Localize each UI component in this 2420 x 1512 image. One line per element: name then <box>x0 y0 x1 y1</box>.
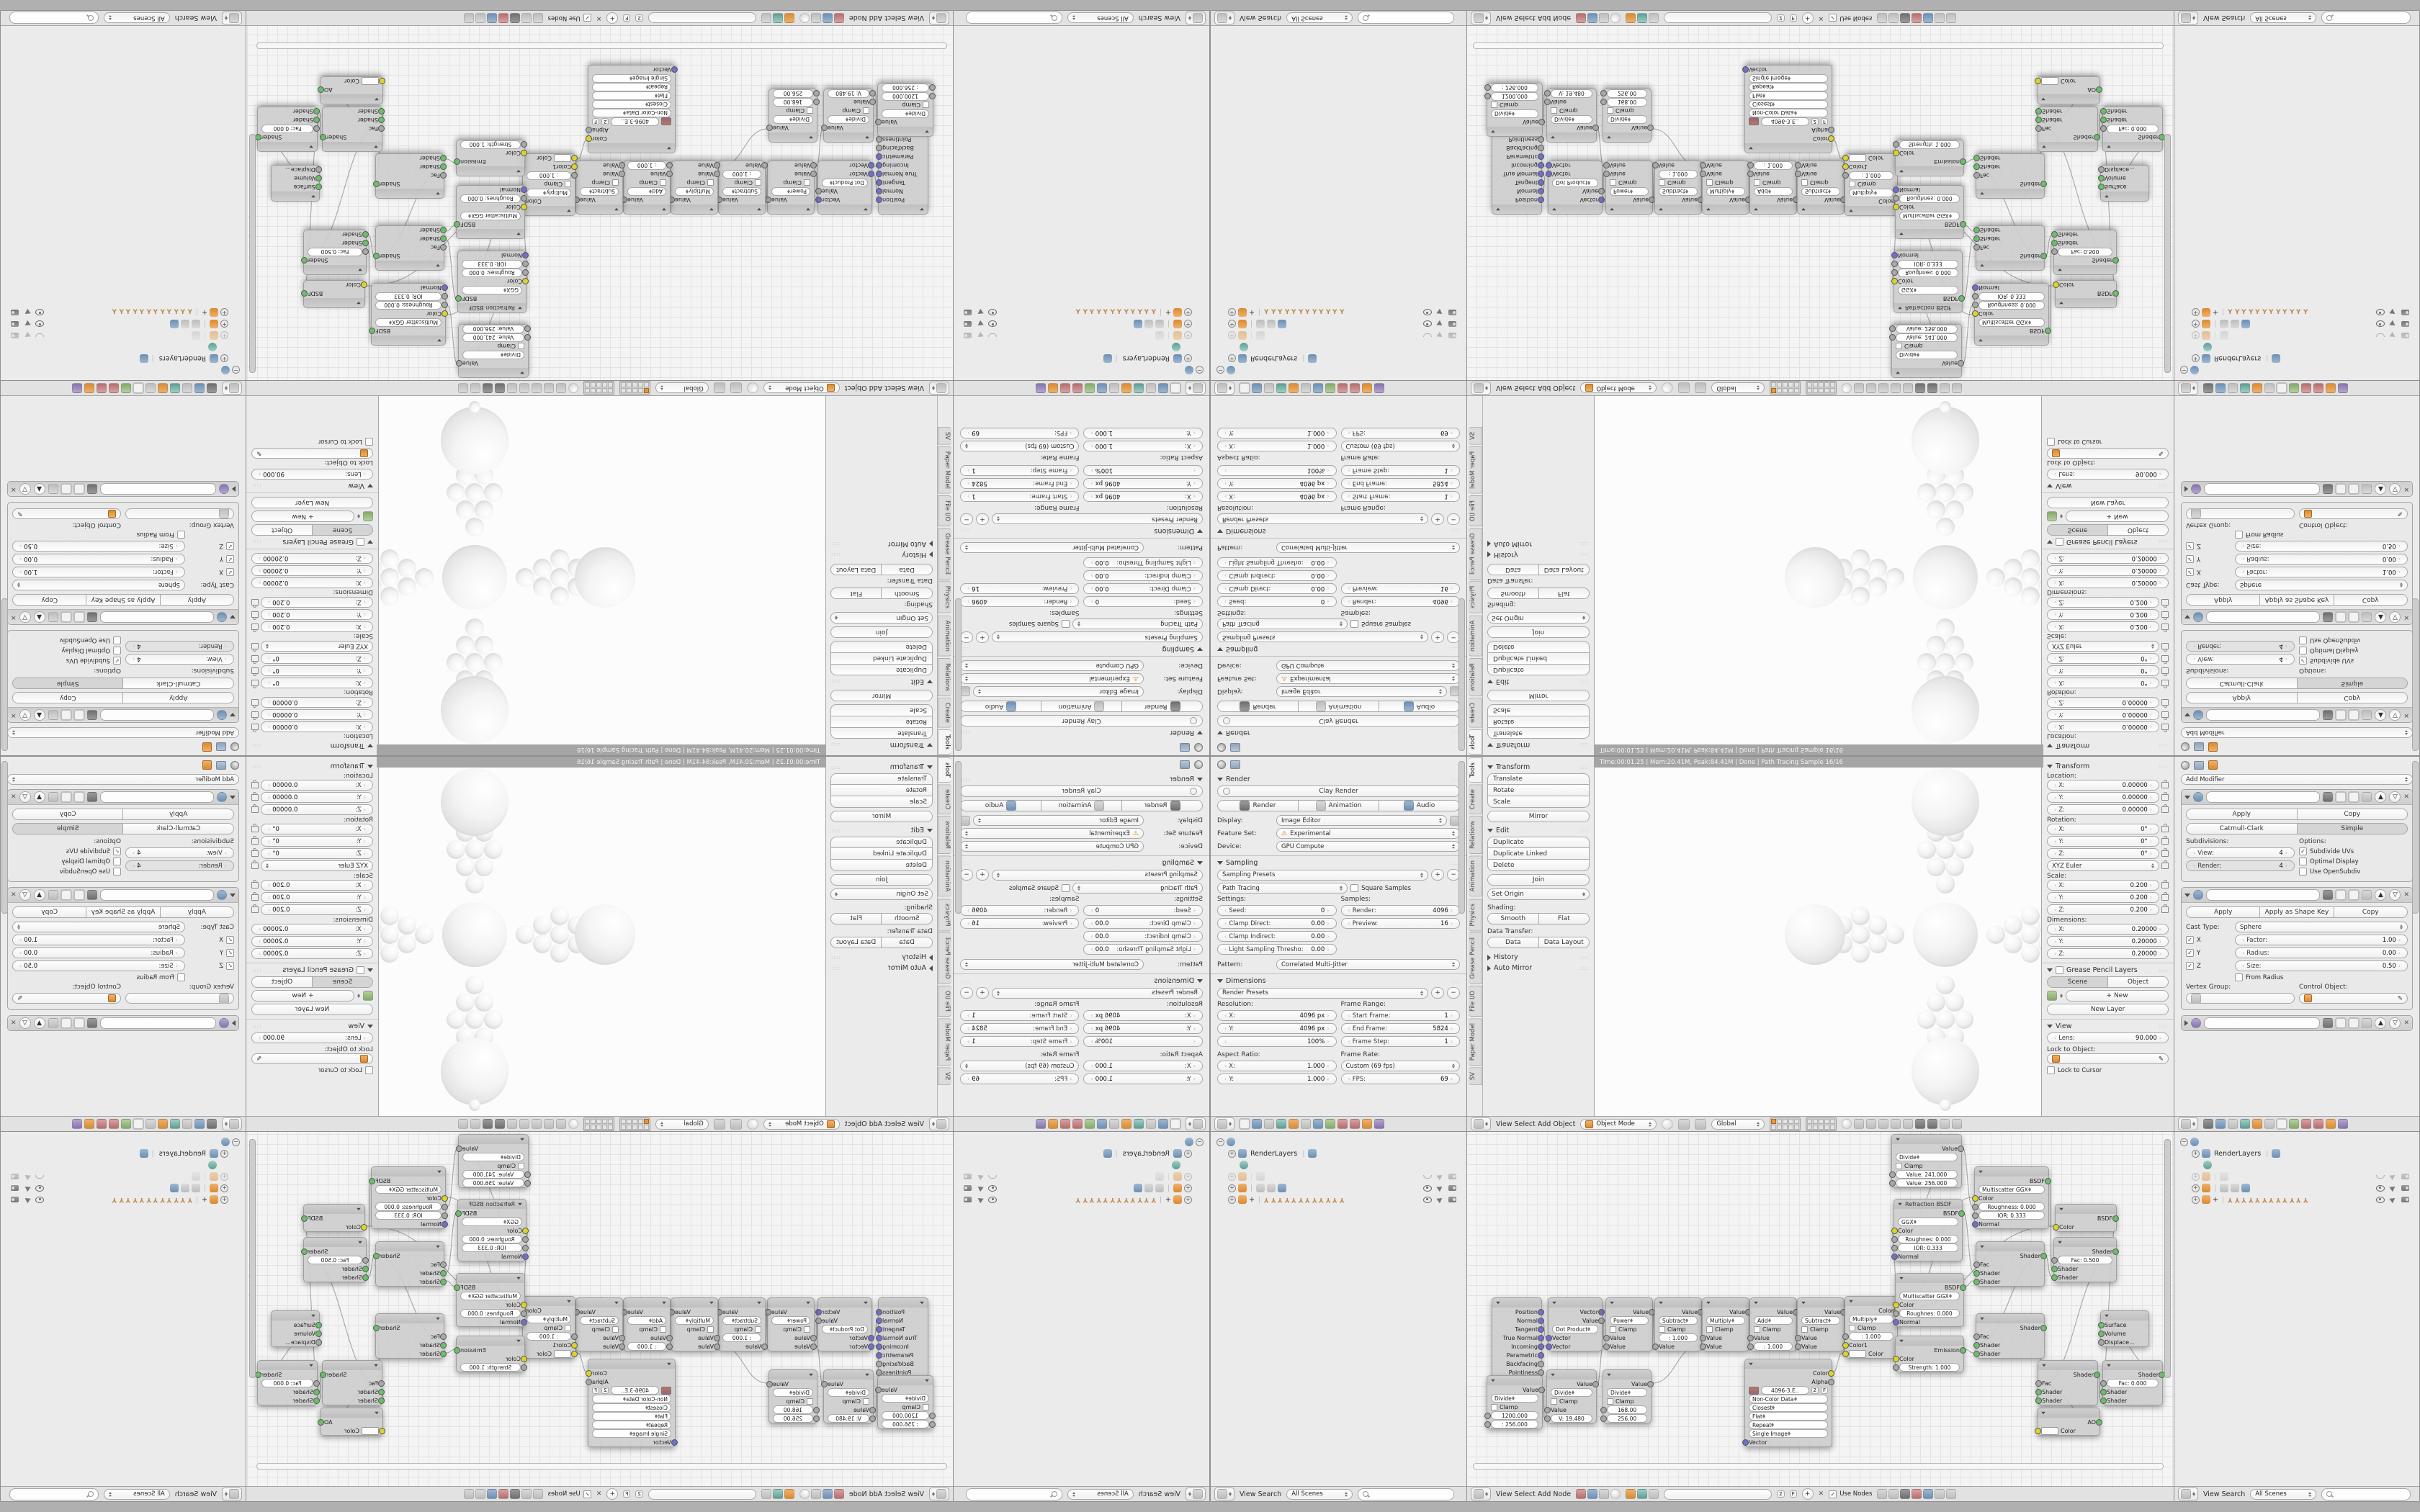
aspect-x-field[interactable]: X:1.000 <box>1217 1061 1337 1071</box>
shelf-tab-create[interactable]: Create <box>1469 698 1482 728</box>
layer-cell[interactable] <box>644 383 649 388</box>
socket-in[interactable] <box>442 1221 448 1228</box>
lens-field[interactable]: Lens:90.000 <box>2047 469 2169 480</box>
shelf-tab-relations[interactable]: Relations <box>938 816 951 854</box>
data-button[interactable]: Data <box>882 564 933 575</box>
node-canvas[interactable]: PositionNormalTangentTrue NormalIncoming… <box>1467 25 2174 380</box>
lock-icon[interactable] <box>2161 806 2169 813</box>
expander-icon[interactable]: + <box>2192 1196 2200 1204</box>
socket-in[interactable] <box>378 117 385 123</box>
editmode-toggle-icon[interactable] <box>61 1018 71 1028</box>
subdiv-render-field[interactable]: Render:4 <box>125 860 234 871</box>
socket-out[interactable] <box>815 1318 822 1324</box>
collapse-icon[interactable] <box>230 714 236 717</box>
screencast-icon[interactable] <box>458 383 468 393</box>
shade-flat-button[interactable]: Flat <box>830 913 882 924</box>
socket-in[interactable] <box>571 163 578 170</box>
layer-cell[interactable] <box>1783 1119 1788 1124</box>
location-z-field[interactable]: Z:0.00000 <box>261 804 373 815</box>
lock-icon[interactable] <box>2161 624 2169 630</box>
socket-in[interactable] <box>1795 1335 1801 1341</box>
location-x-field[interactable]: X:0.00000 <box>261 780 373 791</box>
modifier-name-field[interactable] <box>100 483 216 495</box>
image-name-field[interactable]: 4096-3.E.. <box>1761 117 1809 126</box>
constraints-tab-icon[interactable] <box>1109 1119 1119 1129</box>
node-select[interactable]: Multiscatter GGX <box>375 318 442 327</box>
fake-user-button[interactable]: F <box>623 1490 630 1498</box>
node-select[interactable]: Divide <box>1896 1153 1958 1161</box>
node-mix-1[interactable]: ShaderFacShaderShader <box>375 1241 444 1287</box>
shade-smooth-button[interactable]: Smooth <box>882 913 933 924</box>
expander-icon[interactable]: − <box>1196 366 1204 374</box>
node-menu-node[interactable]: Node <box>849 1490 867 1498</box>
socket-in[interactable] <box>2051 1274 2058 1281</box>
socket-out[interactable] <box>320 1372 326 1378</box>
eye-toggle-icon[interactable] <box>2336 612 2346 622</box>
socket-out[interactable] <box>766 125 773 131</box>
node-select[interactable]: Add <box>1754 187 1793 196</box>
socket-in[interactable] <box>1600 1416 1607 1422</box>
socket-out[interactable] <box>456 360 462 366</box>
move-down-button[interactable]: ▽ <box>19 709 31 721</box>
socket-out[interactable] <box>1647 125 1654 131</box>
clamp-indirect-field[interactable]: Clamp Indirect:0.00 <box>1084 931 1204 942</box>
editor-type-outliner[interactable] <box>2178 12 2198 24</box>
node-select[interactable]: Divide <box>1607 1388 1647 1397</box>
scrollbar[interactable] <box>1 598 8 751</box>
selectable-icon[interactable] <box>1436 1184 1443 1192</box>
node-select[interactable]: Divide <box>773 115 813 124</box>
insert-keyframe-icon[interactable] <box>487 1489 497 1499</box>
parent-node-icon[interactable] <box>521 13 532 23</box>
layer-cell[interactable] <box>608 383 613 388</box>
outliner-menu-search[interactable]: Search <box>175 1490 199 1498</box>
unlink-material-icon[interactable]: ✕ <box>1819 1490 1824 1498</box>
node-ao[interactable]: AOColor <box>2037 76 2100 104</box>
socket-in[interactable] <box>2035 1398 2042 1404</box>
object-tab-icon[interactable] <box>1289 1119 1299 1129</box>
node-menu-view[interactable]: View <box>907 1490 924 1498</box>
viewport-menu-object[interactable]: Object <box>1553 384 1575 392</box>
expand-plus[interactable]: + <box>2213 309 2218 317</box>
socket-in[interactable] <box>666 162 673 168</box>
rotation-mode-select[interactable]: XYZ Euler <box>2047 860 2159 871</box>
node-divide-b[interactable]: ValueDivideClampValueV: 19.480 <box>1546 1369 1597 1423</box>
socket-in[interactable] <box>869 99 876 105</box>
move-up-button[interactable]: ▲ <box>2375 889 2386 901</box>
modifiers-tab-icon[interactable] <box>1313 383 1323 393</box>
node-select[interactable]: Flat <box>1749 1412 1828 1421</box>
move-down-button[interactable]: ▽ <box>19 1017 31 1029</box>
expander-icon[interactable]: + <box>1184 1173 1192 1181</box>
material-tab-icon[interactable] <box>109 1119 119 1129</box>
opengl-anim-icon[interactable] <box>483 383 493 393</box>
factor-field[interactable]: Factor:1.00 <box>12 935 185 945</box>
lock-icon[interactable] <box>251 838 259 845</box>
render-layers-tab-icon[interactable] <box>1252 1119 1262 1129</box>
node-ao[interactable]: AOColor <box>320 76 383 104</box>
add-render-preset-button[interactable]: + <box>976 513 989 525</box>
socket-in[interactable] <box>1747 1335 1754 1341</box>
node-divide-d[interactable]: ValueDivideClampValue: 241.000Value: 256… <box>1891 324 1962 378</box>
node-number-field[interactable]: Fac: 0.000 <box>2107 125 2159 133</box>
layer-cell[interactable] <box>621 1125 626 1130</box>
dimensions-z-field[interactable]: Z:0.20000 <box>251 553 373 564</box>
data-button[interactable]: Data <box>882 937 933 948</box>
selectable-icon[interactable] <box>2389 320 2396 328</box>
socket-out[interactable] <box>821 1381 828 1387</box>
device-select[interactable]: GPU Compute <box>1276 841 1460 852</box>
feature-set-select[interactable]: ⚠Experimental <box>960 673 1144 684</box>
eye-icon[interactable] <box>2376 321 2385 328</box>
outliner-row[interactable]: +RenderLayers| <box>956 353 1204 364</box>
particles-tab-icon[interactable] <box>1362 1119 1372 1129</box>
renderable-icon[interactable] <box>11 333 19 338</box>
socket-in[interactable] <box>440 1342 447 1349</box>
node-number-field[interactable]: 1200.000 <box>1491 92 1538 101</box>
node-select[interactable]: Repeat <box>1749 83 1828 91</box>
lock-to-cursor-checkbox[interactable]: Lock to Cursor <box>2047 1066 2169 1074</box>
world-tab-icon[interactable] <box>1276 1119 1286 1129</box>
socket-in[interactable] <box>2100 108 2107 114</box>
selectable-icon[interactable] <box>2389 1196 2396 1204</box>
new-material-button[interactable]: + <box>1802 12 1814 24</box>
node-select[interactable]: Closest <box>592 1403 671 1412</box>
socket-in[interactable] <box>1842 155 1849 161</box>
socket-out[interactable] <box>2096 86 2102 93</box>
expander-icon[interactable]: + <box>1228 1184 1236 1192</box>
clay-render-radio[interactable] <box>1223 788 1230 795</box>
node-vscrollbar[interactable] <box>249 1139 256 1378</box>
modifiers-tab-icon[interactable] <box>2277 1119 2287 1129</box>
node-checkbox[interactable] <box>1706 180 1713 186</box>
socket-in[interactable] <box>1747 162 1754 168</box>
eye-icon[interactable] <box>988 1197 997 1203</box>
layers-grid-2[interactable] <box>583 1117 614 1131</box>
mirror-button[interactable]: Mirror <box>1487 690 1590 701</box>
socket-in[interactable] <box>524 1171 531 1178</box>
constraints-tab-icon[interactable] <box>1109 383 1119 393</box>
layer-cell[interactable] <box>1824 383 1829 388</box>
outliner-row[interactable]: +| <box>2180 318 2416 330</box>
node-menu-add[interactable]: Add <box>869 1490 882 1498</box>
node-number-field[interactable]: Strength: 1.000 <box>460 1363 521 1372</box>
eye-icon[interactable] <box>1423 310 1432 316</box>
socket-in[interactable] <box>1891 252 1898 258</box>
cage-toggle-icon[interactable] <box>48 1018 58 1028</box>
layer-cell[interactable] <box>1771 389 1776 394</box>
modifier-name-field[interactable] <box>2206 889 2320 901</box>
move-up-button[interactable]: ▲ <box>34 483 45 495</box>
scale-x-field[interactable]: X:0.200 <box>261 880 373 891</box>
location-x-field[interactable]: X:0.00000 <box>2047 780 2159 791</box>
object-tab-icon[interactable] <box>1121 383 1131 393</box>
socket-in[interactable] <box>440 244 447 251</box>
node-checkbox[interactable] <box>863 108 869 114</box>
eye-toggle-icon[interactable] <box>2336 890 2346 900</box>
shelf-tab-create[interactable]: Create <box>938 698 951 728</box>
dimensions-z-field[interactable]: Z:0.20000 <box>2047 553 2169 564</box>
pause-icon[interactable] <box>1940 383 1950 393</box>
outliner-row[interactable]: +| <box>956 330 1204 341</box>
node-select[interactable]: Non-Color Data <box>592 109 671 117</box>
node-select[interactable]: Divide <box>1491 109 1538 118</box>
node-divide-d[interactable]: ValueDivideClampValue: 241.000Value: 256… <box>458 324 529 378</box>
socket-out[interactable] <box>1538 119 1545 125</box>
outliner-row[interactable]: − <box>4 1136 240 1148</box>
node-glossy-1[interactable]: BSDFMultiscatter GGXColorRoughness: 0.00… <box>371 283 446 346</box>
socket-in[interactable] <box>2051 240 2058 246</box>
modifier-name-field[interactable] <box>100 791 214 803</box>
expander-icon[interactable]: − <box>2180 1138 2188 1146</box>
color-swatch[interactable] <box>2041 78 2058 86</box>
shelf-tab-sv[interactable]: SV <box>1469 1067 1482 1085</box>
node-image-texture[interactable]: ColorAlpha4096-3.E..2FNon-Color DataClos… <box>588 1359 676 1447</box>
shade-flat-button[interactable]: Flat <box>830 588 882 599</box>
material-node-icon[interactable] <box>834 1489 844 1499</box>
clay-render-button[interactable]: Clay Render <box>1217 715 1460 726</box>
from-radius-checkbox[interactable]: From Radius <box>2235 531 2283 539</box>
shelf-transform-title[interactable]: Transform:::: <box>830 741 933 749</box>
npanel-transform-title[interactable]: Transform:::: <box>2047 742 2169 750</box>
screwdriver-icon[interactable] <box>1230 760 1240 769</box>
outliner-search-input[interactable] <box>2321 12 2411 24</box>
color-swatch[interactable] <box>1849 155 1866 163</box>
node-checkbox[interactable] <box>518 343 524 350</box>
rotate-button[interactable]: Rotate <box>1487 785 1590 796</box>
outliner-row[interactable] <box>1216 341 1464 353</box>
rotation-mode-select[interactable]: XYZ Euler <box>261 860 373 871</box>
use-opensubdiv-checkbox[interactable]: Use OpenSubdiv <box>2299 636 2408 644</box>
socket-in[interactable] <box>868 171 874 177</box>
lock-icon[interactable] <box>251 906 259 913</box>
layers-grid-2[interactable] <box>1806 1117 1837 1131</box>
world-tab-icon[interactable] <box>2240 1119 2250 1129</box>
render-toggle-icon[interactable] <box>87 612 97 622</box>
socket-in[interactable] <box>1972 1204 1978 1210</box>
socket-in[interactable] <box>1544 99 1551 105</box>
node-checkbox[interactable] <box>660 180 666 186</box>
socket-in[interactable] <box>1889 1171 1896 1178</box>
layer-cell[interactable] <box>1794 1119 1799 1124</box>
socket-in[interactable] <box>1603 1344 1610 1350</box>
grease-pencil-layers-title[interactable]: Grease Pencil Layers:::: <box>2047 966 2169 974</box>
history-panel-title[interactable]: History:::: <box>830 953 933 961</box>
rotate-button[interactable]: Rotate <box>830 716 933 727</box>
node-select[interactable]: Multiply <box>1706 187 1745 196</box>
expander-icon[interactable]: + <box>220 1150 228 1158</box>
screwdriver-icon[interactable] <box>1230 743 1240 752</box>
socket-in[interactable] <box>521 150 527 156</box>
npanel-transform-title[interactable]: Transform:::: <box>2047 762 2169 770</box>
image-fake-user-badge[interactable]: F <box>592 1387 599 1394</box>
node-emission[interactable]: EmissionColorStrength: 1.000 <box>456 140 525 176</box>
node-checkbox[interactable] <box>807 108 813 114</box>
layer-cell[interactable] <box>585 383 590 388</box>
location-z-field[interactable]: Z:0.00000 <box>2047 804 2159 815</box>
eye-icon[interactable] <box>2376 310 2385 316</box>
editor-type-node[interactable] <box>929 12 949 24</box>
socket-in[interactable] <box>813 1407 820 1413</box>
set-origin-button[interactable]: Set Origin <box>830 888 933 900</box>
remove-render-preset-button[interactable]: − <box>1447 987 1460 999</box>
socket-in[interactable] <box>521 1364 527 1371</box>
move-down-button[interactable]: ▽ <box>2389 791 2401 803</box>
node-menu-view[interactable]: View <box>1496 1490 1512 1498</box>
renderable-icon[interactable] <box>1448 1174 1456 1179</box>
move-up-button[interactable]: ▲ <box>34 1017 45 1029</box>
seed-field[interactable]: Seed:0 <box>1084 596 1204 607</box>
eye-toggle-icon[interactable] <box>2336 1018 2346 1028</box>
gp-object-button[interactable]: Object <box>2108 524 2169 536</box>
expander-icon[interactable]: + <box>2192 1173 2200 1181</box>
size-field[interactable]: Size:0.50 <box>12 541 185 552</box>
layer-cell[interactable] <box>1783 383 1788 388</box>
render-samples-field[interactable]: Render:4096 <box>960 596 1080 607</box>
node-number-field[interactable]: 168.00 <box>1607 1405 1647 1414</box>
layer-cell[interactable] <box>1788 1125 1793 1130</box>
gp-object-button[interactable]: Object <box>251 524 312 536</box>
selectable-icon[interactable] <box>976 1184 983 1192</box>
node-math-add[interactable]: ValueAddClampValue: 1.000 <box>1749 1297 1797 1351</box>
node-number-field[interactable]: : 1.000 <box>722 1333 761 1342</box>
node-select[interactable]: Subtract <box>722 1316 761 1325</box>
socket-in[interactable] <box>524 325 531 332</box>
socket-out[interactable] <box>2094 1372 2100 1378</box>
node-number-field[interactable]: IOR: 0.333 <box>1978 1211 2045 1220</box>
socket-in[interactable] <box>1546 171 1552 177</box>
shelf-tab-create[interactable]: Create <box>1469 784 1482 814</box>
move-up-button[interactable]: ▲ <box>2375 483 2386 495</box>
node-number-field[interactable]: IOR: 0.333 <box>462 1243 522 1252</box>
color-swatch[interactable] <box>554 155 571 163</box>
layers-grid-1[interactable] <box>1770 1117 1801 1131</box>
scrollbar[interactable] <box>1458 761 1465 914</box>
expander-icon[interactable]: + <box>2192 1150 2200 1158</box>
render-tab-icon[interactable] <box>1170 383 1180 393</box>
fps-field[interactable]: FPS:69 <box>1341 428 1461 438</box>
viewport-menu-view[interactable]: View <box>1496 384 1512 392</box>
physics-tab-icon[interactable] <box>2338 1119 2348 1129</box>
node-hscrollbar[interactable] <box>1473 42 2164 49</box>
gp-new-button[interactable]: +New <box>251 990 354 1002</box>
pin-icon[interactable] <box>230 743 239 752</box>
render-button[interactable]: Render <box>1121 701 1203 712</box>
snap-element-icon[interactable] <box>519 1119 529 1129</box>
node-number-field[interactable]: : 1.000 <box>722 170 761 179</box>
move-down-button[interactable]: ▽ <box>19 889 31 901</box>
socket-out[interactable] <box>766 1381 773 1387</box>
node-checkbox[interactable] <box>755 180 761 186</box>
expander-icon[interactable]: + <box>1228 332 1236 340</box>
node-number-field[interactable]: IOR: 0.333 <box>462 260 522 269</box>
integrator-select[interactable]: Path Tracing <box>1217 883 1348 894</box>
dimensions-panel-title[interactable]: Dimensions:::: <box>1217 527 1460 535</box>
object-icon[interactable] <box>1626 13 1636 23</box>
socket-in[interactable] <box>2098 184 2105 190</box>
view-panel-title[interactable]: View:::: <box>2047 482 2169 490</box>
layer-cell[interactable] <box>585 1119 590 1124</box>
renderable-icon[interactable] <box>2401 310 2409 315</box>
auto-mirror-panel-title[interactable]: Auto Mirror:::: <box>830 540 933 548</box>
node-select[interactable]: Dot Product <box>822 179 868 187</box>
layers-grid-1[interactable] <box>619 382 650 395</box>
renderable-icon[interactable] <box>1448 333 1456 338</box>
factor-field[interactable]: Factor:1.00 <box>2235 567 2408 577</box>
rotation-y-field[interactable]: Y:0° <box>261 665 373 676</box>
outliner-row[interactable]: +| <box>1216 330 1464 341</box>
socket-in[interactable] <box>1893 1310 1899 1317</box>
node-divide-b[interactable]: ValueDivideClampValueV: 19.480 <box>823 89 874 143</box>
outliner-row[interactable]: ++|YYYYYYYYYYYY <box>4 307 240 318</box>
apply-button[interactable]: Apply <box>2186 594 2260 606</box>
start-frame-field[interactable]: Start Frame:1 <box>960 491 1080 502</box>
fake-user-button[interactable]: F <box>623 14 630 22</box>
use-nodes-checkbox[interactable]: ✓Use Nodes <box>1829 14 1872 22</box>
new-material-button[interactable]: + <box>1802 1488 1814 1500</box>
socket-in[interactable] <box>440 227 447 233</box>
socket-in[interactable] <box>1973 235 1980 242</box>
viewport-canvas[interactable] <box>379 757 826 1117</box>
viewport-menu-object[interactable]: Object <box>1553 1120 1575 1128</box>
socket-in[interactable] <box>442 1204 448 1210</box>
render-layers-tab-icon[interactable] <box>1158 1119 1168 1129</box>
material-name-field[interactable] <box>648 13 756 24</box>
render-presets-select[interactable]: Render Presets <box>992 514 1203 525</box>
lock-icon[interactable] <box>251 782 259 788</box>
layer-cell[interactable] <box>1824 389 1829 394</box>
node-checkbox[interactable] <box>518 1163 524 1169</box>
eye-icon[interactable] <box>988 321 997 328</box>
gp-new-layer-button[interactable]: New Layer <box>251 1004 373 1015</box>
copy-button[interactable]: Copy <box>2334 906 2408 918</box>
world-tab-icon[interactable] <box>1276 383 1286 393</box>
eye-toggle-icon[interactable] <box>74 612 84 622</box>
seed-field[interactable]: Seed:0 <box>1217 905 1337 916</box>
editmode-toggle-icon[interactable] <box>2349 792 2359 802</box>
pivot-center-icon[interactable] <box>556 383 566 393</box>
modifiers-tab-icon[interactable] <box>1097 383 1107 393</box>
pencil-icon[interactable] <box>2047 511 2057 521</box>
pivot-point-icon[interactable] <box>730 1119 742 1130</box>
node-math-subtract1[interactable]: ValueSubtractClamp: 1.000Value <box>1654 1297 1702 1351</box>
node-number-field[interactable]: : 1.000 <box>1754 1342 1793 1351</box>
socket-in[interactable] <box>2053 1224 2059 1230</box>
layer-cell[interactable] <box>1824 1125 1829 1130</box>
screencast-icon[interactable] <box>1952 1119 1962 1129</box>
socket-out[interactable] <box>1538 136 1544 143</box>
socket-in[interactable] <box>810 171 817 177</box>
socket-in[interactable] <box>1891 1236 1898 1243</box>
users-count-badge[interactable]: 2 <box>635 1490 642 1498</box>
node-checkbox[interactable] <box>1607 108 1613 114</box>
expand-plus[interactable]: + <box>2213 1196 2218 1204</box>
scale-z-field[interactable]: Z:0.200 <box>261 597 373 608</box>
socket-in[interactable] <box>619 162 625 168</box>
world-tab-icon[interactable] <box>170 1119 180 1129</box>
socket-in[interactable] <box>1972 1221 1978 1228</box>
scale-y-field[interactable]: Y:0.200 <box>2047 892 2159 903</box>
lock-icon[interactable] <box>251 711 259 718</box>
socket-in[interactable] <box>761 1344 768 1350</box>
clamp-direct-field[interactable]: Clamp Direct:0.00 <box>1084 583 1204 594</box>
expander-icon[interactable]: + <box>1184 355 1192 363</box>
shelf-tab-physics[interactable]: Physics <box>1469 899 1482 931</box>
layer-cell[interactable] <box>1777 383 1782 388</box>
node-math-subtract2[interactable]: ValueSubtractClampValueValue <box>575 1297 623 1351</box>
node-menu-select[interactable]: Select <box>884 14 905 22</box>
eye-icon[interactable] <box>1423 321 1432 328</box>
